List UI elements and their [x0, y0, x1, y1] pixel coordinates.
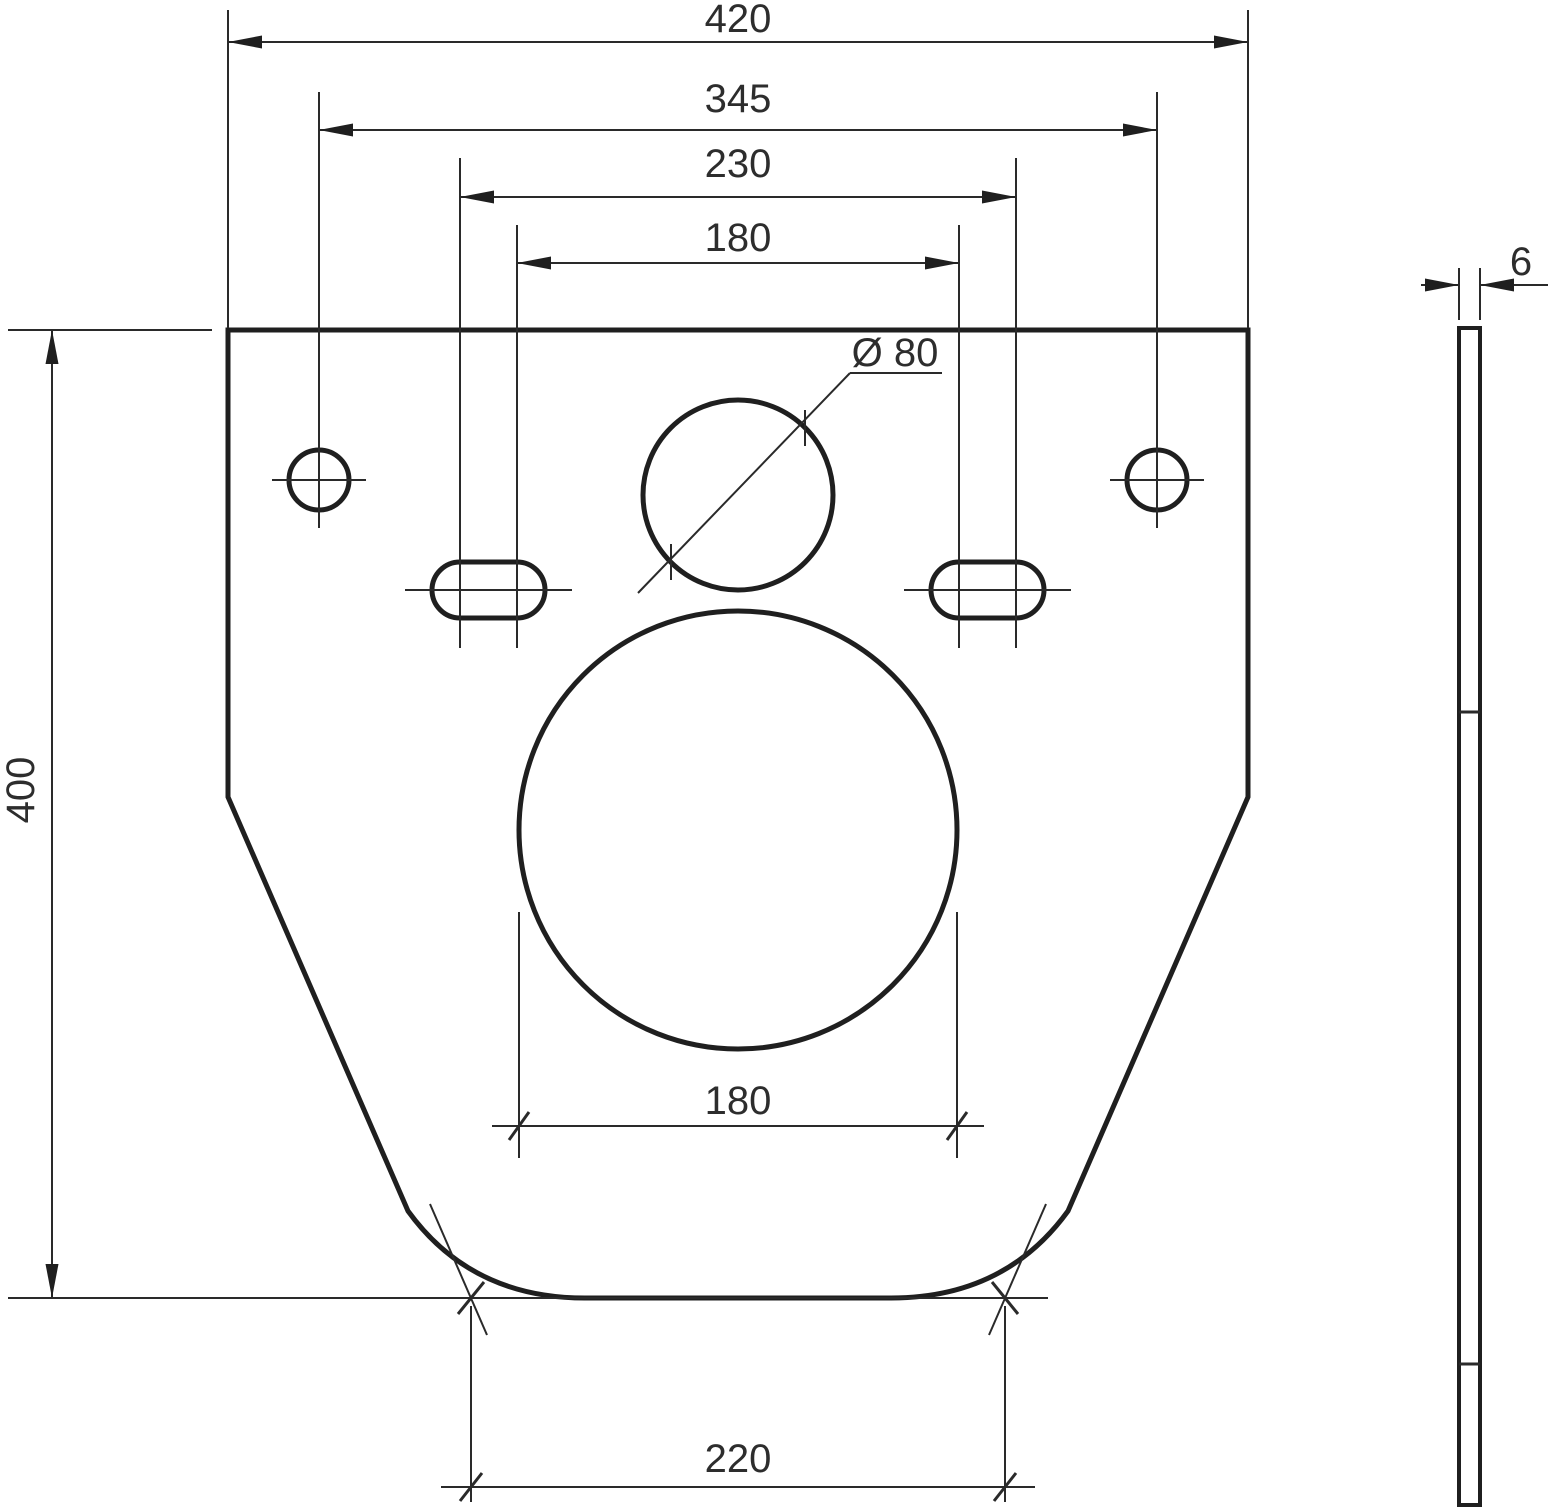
dim-label-slot-inner-spacing: 180 — [705, 216, 772, 260]
dimension-thickness: 6 — [1421, 240, 1548, 320]
dim-label-bottom-edge-width: 220 — [705, 1437, 772, 1481]
arrowhead-top — [46, 330, 59, 364]
technical-drawing-page: 420 345 230 180 400 — [0, 0, 1550, 1510]
side-view — [1459, 328, 1480, 1505]
dim-label-overall-height: 400 — [0, 757, 43, 824]
dimension-pipe-hole-diameter: Ø 80 — [638, 331, 942, 593]
technical-drawing: 420 345 230 180 400 — [0, 0, 1550, 1510]
arrowhead-right — [1214, 36, 1248, 49]
arrowhead-left — [460, 191, 494, 204]
dim-label-thickness: 6 — [1510, 240, 1532, 284]
construction-line-left — [430, 1204, 487, 1335]
front-view — [228, 330, 1248, 1335]
dimension-overall-height: 400 — [0, 330, 1048, 1298]
dimension-bottom-edge-width: 220 — [441, 1282, 1035, 1502]
arrowhead-right — [925, 257, 959, 270]
dimension-slot-inner-spacing: 180 — [517, 216, 959, 648]
dim-label-slot-outer-spacing: 230 — [705, 142, 772, 186]
drain-hole — [519, 611, 957, 1049]
dim-label-overall-width: 420 — [705, 0, 772, 41]
dim-label-pipe-hole-diameter: Ø 80 — [852, 331, 939, 375]
dim-label-mounting-hole-spacing: 345 — [705, 77, 772, 121]
dimension-drain-hole-width: 180 — [492, 912, 984, 1158]
arrowhead-right — [982, 191, 1016, 204]
dim-label-drain-hole-width: 180 — [705, 1079, 772, 1123]
arrowhead-left — [228, 36, 262, 49]
arrowhead-right — [1123, 124, 1157, 137]
construction-line-right — [989, 1204, 1046, 1335]
leader-diagonal — [638, 373, 850, 593]
arrowhead-left — [517, 257, 551, 270]
arrowhead-left — [1425, 279, 1459, 292]
side-view-outline — [1459, 328, 1480, 1505]
arrowhead-left — [319, 124, 353, 137]
arrowhead-bottom — [46, 1264, 59, 1298]
plate-outline — [228, 330, 1248, 1298]
